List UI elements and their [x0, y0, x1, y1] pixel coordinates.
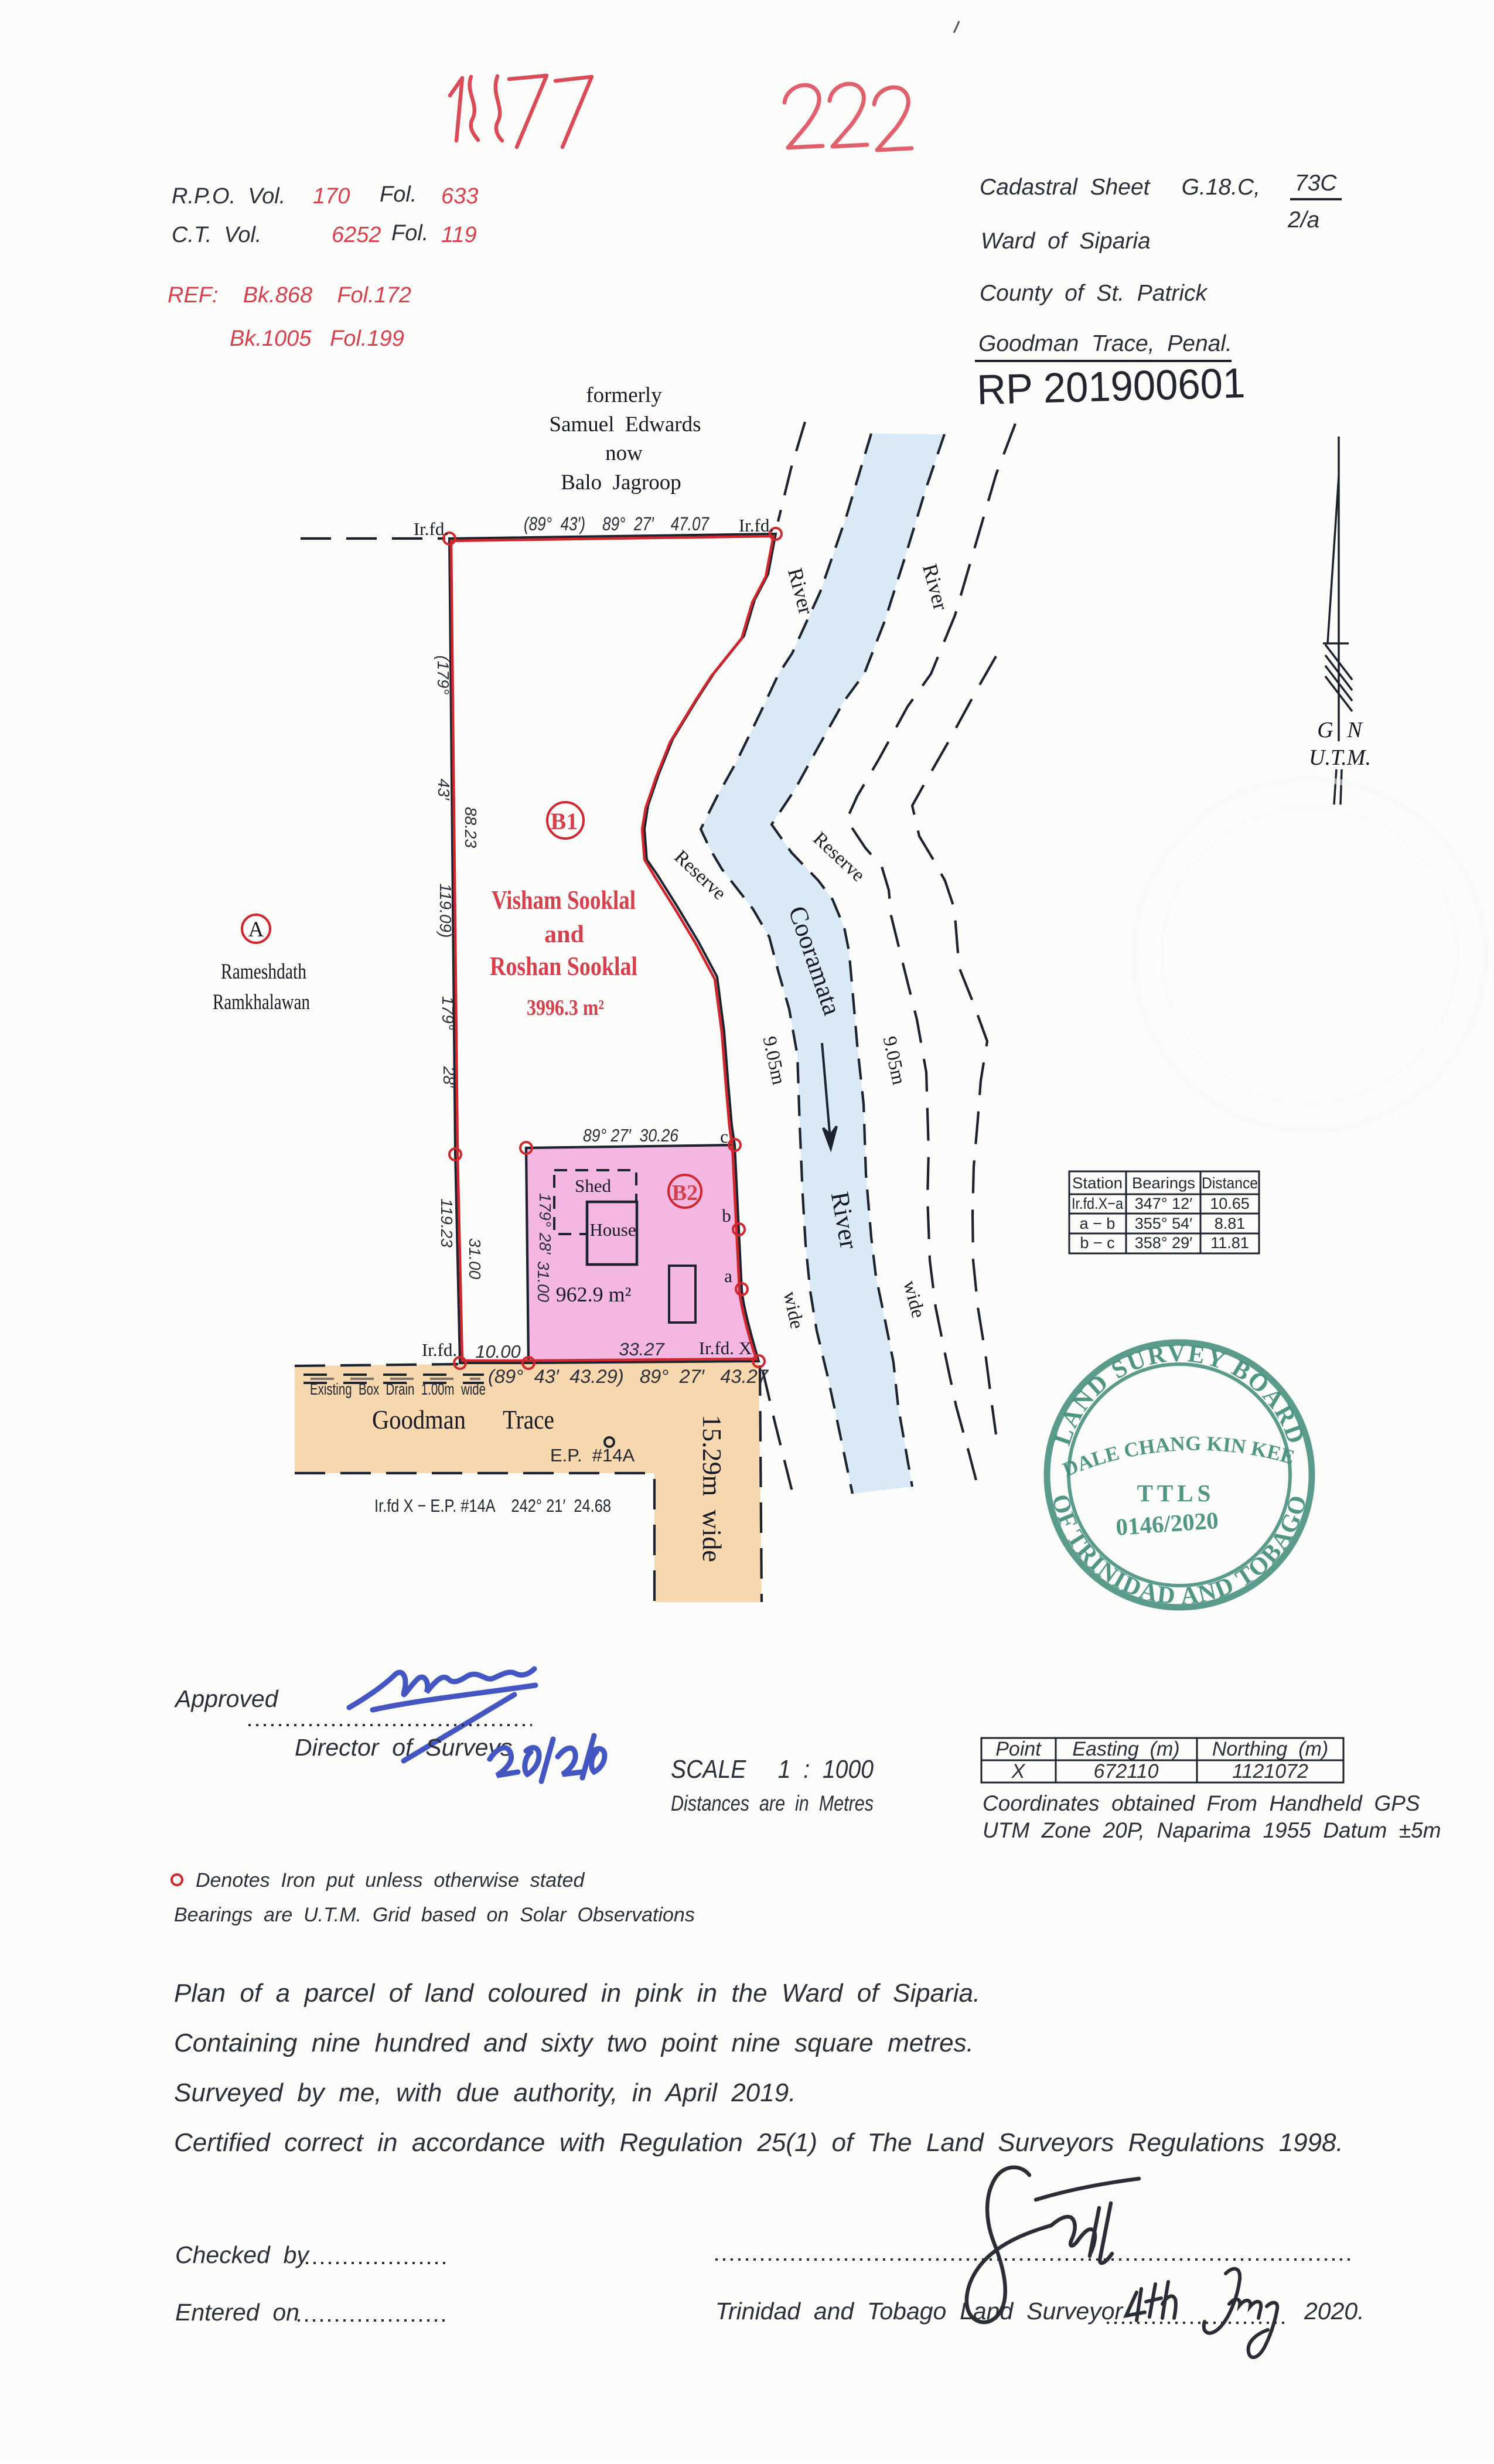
svg-text:Bk.1005 Fol.199: Bk.1005 Fol.199	[230, 326, 404, 351]
svg-text:formerly: formerly	[586, 383, 662, 407]
svg-text:179°: 179°	[439, 996, 457, 1030]
svg-text:R.P.O. Vol.: R.P.O. Vol.	[172, 184, 285, 209]
svg-text:County of St. Patrick: County of St. Patrick	[980, 281, 1208, 306]
svg-text:N: N	[1346, 718, 1363, 742]
svg-text:Director of Surveys: Director of Surveys	[295, 1734, 512, 1761]
svg-text:119.23: 119.23	[438, 1198, 456, 1248]
svg-text:6252: 6252	[332, 223, 381, 247]
svg-text:Ir.fd.: Ir.fd.	[739, 515, 774, 536]
svg-text:Northing (m): Northing (m)	[1212, 1738, 1328, 1760]
svg-text:Surveyed by me, with due: Surveyed by me, with due authority, in A…	[174, 2078, 796, 2107]
svg-text:A: A	[248, 918, 264, 942]
svg-text:Roshan Sooklal: Roshan Sooklal	[490, 951, 637, 981]
svg-text:33.27: 33.27	[619, 1339, 665, 1359]
svg-text:REF: Bk.868 Fol.172: REF: Bk.868 Fol.172	[168, 283, 411, 308]
svg-text:Visham Sooklal: Visham Sooklal	[492, 885, 636, 915]
svg-text:Trinidad and Tobago Land S: Trinidad and Tobago Land Surveyor	[715, 2298, 1124, 2325]
svg-text:10.65: 10.65	[1210, 1195, 1250, 1212]
svg-text:SCALE 1 : 1000: SCALE 1 : 1000	[671, 1755, 874, 1784]
svg-text:962.9 m²: 962.9 m²	[556, 1283, 632, 1306]
svg-text:10.00: 10.00	[475, 1341, 521, 1362]
svg-text:Bearings are U.T.M. Grid b: Bearings are U.T.M. Grid based on Solar …	[174, 1904, 695, 1926]
svg-text:2020.: 2020.	[1304, 2298, 1365, 2325]
svg-text:and: and	[544, 921, 584, 948]
svg-text:Bearings: Bearings	[1132, 1174, 1195, 1192]
svg-text:Distances are in Metres: Distances are in Metres	[671, 1791, 874, 1815]
svg-text:Distance: Distance	[1202, 1174, 1258, 1192]
svg-text:73C: 73C	[1295, 171, 1337, 196]
svg-text:Ir.fd. X: Ir.fd. X	[699, 1338, 752, 1358]
svg-text:Entered on: Entered on	[175, 2299, 299, 2326]
svg-text:E.P. #14A: E.P. #14A	[550, 1445, 635, 1466]
svg-text:C.T. Vol.: C.T. Vol.	[172, 223, 261, 247]
svg-text:Containing nine hundred and: Containing nine hundred and sixty two po…	[174, 2029, 974, 2057]
svg-text:Ir.fd.: Ir.fd.	[414, 519, 449, 539]
svg-text:UTM Zone 20P, Naparima 195: UTM Zone 20P, Naparima 1955 Datum ±5m	[983, 1818, 1441, 1842]
svg-text:31.00: 31.00	[534, 1261, 552, 1302]
svg-text:Plan of a parcel of land: Plan of a parcel of land coloured in pin…	[174, 1979, 980, 2008]
svg-text:347° 12′: 347° 12′	[1135, 1195, 1192, 1212]
svg-text:Fol.: Fol.	[391, 221, 428, 246]
svg-text:Ir.fd.: Ir.fd.	[422, 1340, 457, 1360]
svg-text:Fol.: Fol.	[380, 182, 417, 207]
svg-text:31.00: 31.00	[466, 1238, 484, 1279]
svg-text:Certified correct in accord: Certified correct in accordance with Reg…	[174, 2128, 1343, 2157]
svg-text:28′: 28′	[440, 1066, 458, 1089]
svg-text:Ramkhalawan: Ramkhalawan	[213, 990, 310, 1014]
svg-text:U.T.M.: U.T.M.	[1309, 745, 1371, 770]
svg-text:Rameshdath: Rameshdath	[221, 960, 306, 984]
svg-text:3996.3 m²: 3996.3 m²	[527, 996, 604, 1020]
svg-text:672110: 672110	[1094, 1760, 1159, 1783]
svg-text:1121072: 1121072	[1232, 1760, 1308, 1783]
svg-text:358° 29′: 358° 29′	[1135, 1234, 1192, 1252]
svg-text:now: now	[605, 441, 643, 465]
svg-text:Cadastral Sheet G.18.C,: Cadastral Sheet G.18.C,	[980, 175, 1260, 200]
svg-text:Ward of Siparia: Ward of Siparia	[981, 229, 1151, 254]
svg-text:c: c	[720, 1126, 728, 1147]
svg-text:G: G	[1317, 718, 1333, 742]
svg-text:House: House	[589, 1219, 636, 1240]
svg-text:RP 201900601: RP 201900601	[976, 360, 1246, 414]
svg-text:15.29m wide: 15.29m wide	[697, 1415, 727, 1562]
svg-text:X: X	[1011, 1760, 1026, 1783]
svg-text:Approved: Approved	[173, 1685, 279, 1712]
svg-text:Ir.fd X − E.P. #14A 242° 21: Ir.fd X − E.P. #14A 242° 21′ 24.68	[374, 1495, 611, 1516]
svg-text:(89° 43′) 89° 27′ 47.0: (89° 43′) 89° 27′ 47.07	[524, 513, 710, 534]
svg-text:Coordinates obtained From H: Coordinates obtained From Handheld GPS	[983, 1791, 1420, 1815]
svg-text:11.81: 11.81	[1210, 1234, 1249, 1252]
svg-text:Goodman Trace, Penal.: Goodman Trace, Penal.	[978, 331, 1232, 356]
svg-text:Existing Box Drain 1.00m w: Existing Box Drain 1.00m wide	[310, 1380, 486, 1398]
svg-text:Shed: Shed	[575, 1175, 612, 1196]
svg-text:Denotes Iron put unless ot: Denotes Iron put unless otherwise stated	[196, 1869, 585, 1892]
svg-text:Station: Station	[1072, 1174, 1123, 1192]
svg-text:Easting (m): Easting (m)	[1072, 1738, 1179, 1760]
svg-text:B1: B1	[551, 808, 578, 834]
svg-text:Ir.fd.X−a: Ir.fd.X−a	[1072, 1195, 1124, 1212]
svg-text:Balo Jagroop: Balo Jagroop	[561, 471, 681, 495]
svg-text:119: 119	[441, 223, 477, 247]
svg-text:Goodman: Goodman	[372, 1405, 466, 1434]
svg-text:(179°: (179°	[434, 655, 452, 694]
svg-text:43′: 43′	[435, 779, 453, 801]
svg-text:89° 27′ 30.26: 89° 27′ 30.26	[583, 1125, 679, 1146]
svg-text:Point: Point	[995, 1738, 1042, 1760]
svg-text:633: 633	[441, 184, 478, 209]
svg-text:TTLS: TTLS	[1137, 1480, 1215, 1507]
svg-text:179°: 179°	[536, 1193, 554, 1227]
svg-text:Trace: Trace	[503, 1405, 554, 1434]
svg-text:355° 54′: 355° 54′	[1135, 1215, 1192, 1232]
svg-text:Checked by: Checked by	[175, 2241, 310, 2268]
svg-text:b − c: b − c	[1080, 1234, 1114, 1252]
svg-text:170: 170	[313, 184, 350, 209]
svg-text:a − b: a − b	[1080, 1215, 1116, 1232]
svg-text:a: a	[724, 1266, 732, 1286]
svg-text:2/a: 2/a	[1287, 207, 1319, 233]
svg-text:28′: 28′	[536, 1232, 554, 1255]
svg-text:(89° 43′ 43.29) 89° 27′: (89° 43′ 43.29) 89° 27′ 43.27	[488, 1366, 769, 1387]
svg-text:Samuel Edwards: Samuel Edwards	[550, 413, 701, 437]
svg-text:119.09): 119.09)	[436, 884, 455, 938]
svg-text:B2: B2	[672, 1181, 698, 1205]
svg-text:8.81: 8.81	[1215, 1215, 1246, 1232]
svg-text:b: b	[722, 1205, 731, 1226]
svg-text:88.23: 88.23	[462, 807, 480, 848]
